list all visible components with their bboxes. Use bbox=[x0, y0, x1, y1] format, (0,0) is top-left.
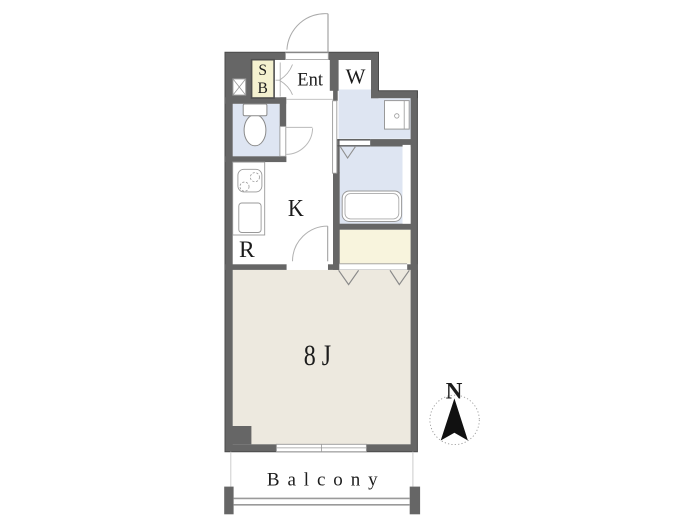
svg-text:B: B bbox=[258, 80, 268, 97]
svg-text:N: N bbox=[446, 378, 463, 403]
svg-text:Balcony: Balcony bbox=[267, 469, 386, 490]
svg-text:S: S bbox=[258, 62, 267, 79]
svg-text:Ent: Ent bbox=[297, 71, 324, 91]
svg-text:W: W bbox=[346, 64, 366, 88]
svg-text:K: K bbox=[288, 195, 304, 222]
svg-text:8 J: 8 J bbox=[304, 338, 331, 371]
svg-text:R: R bbox=[239, 237, 255, 263]
